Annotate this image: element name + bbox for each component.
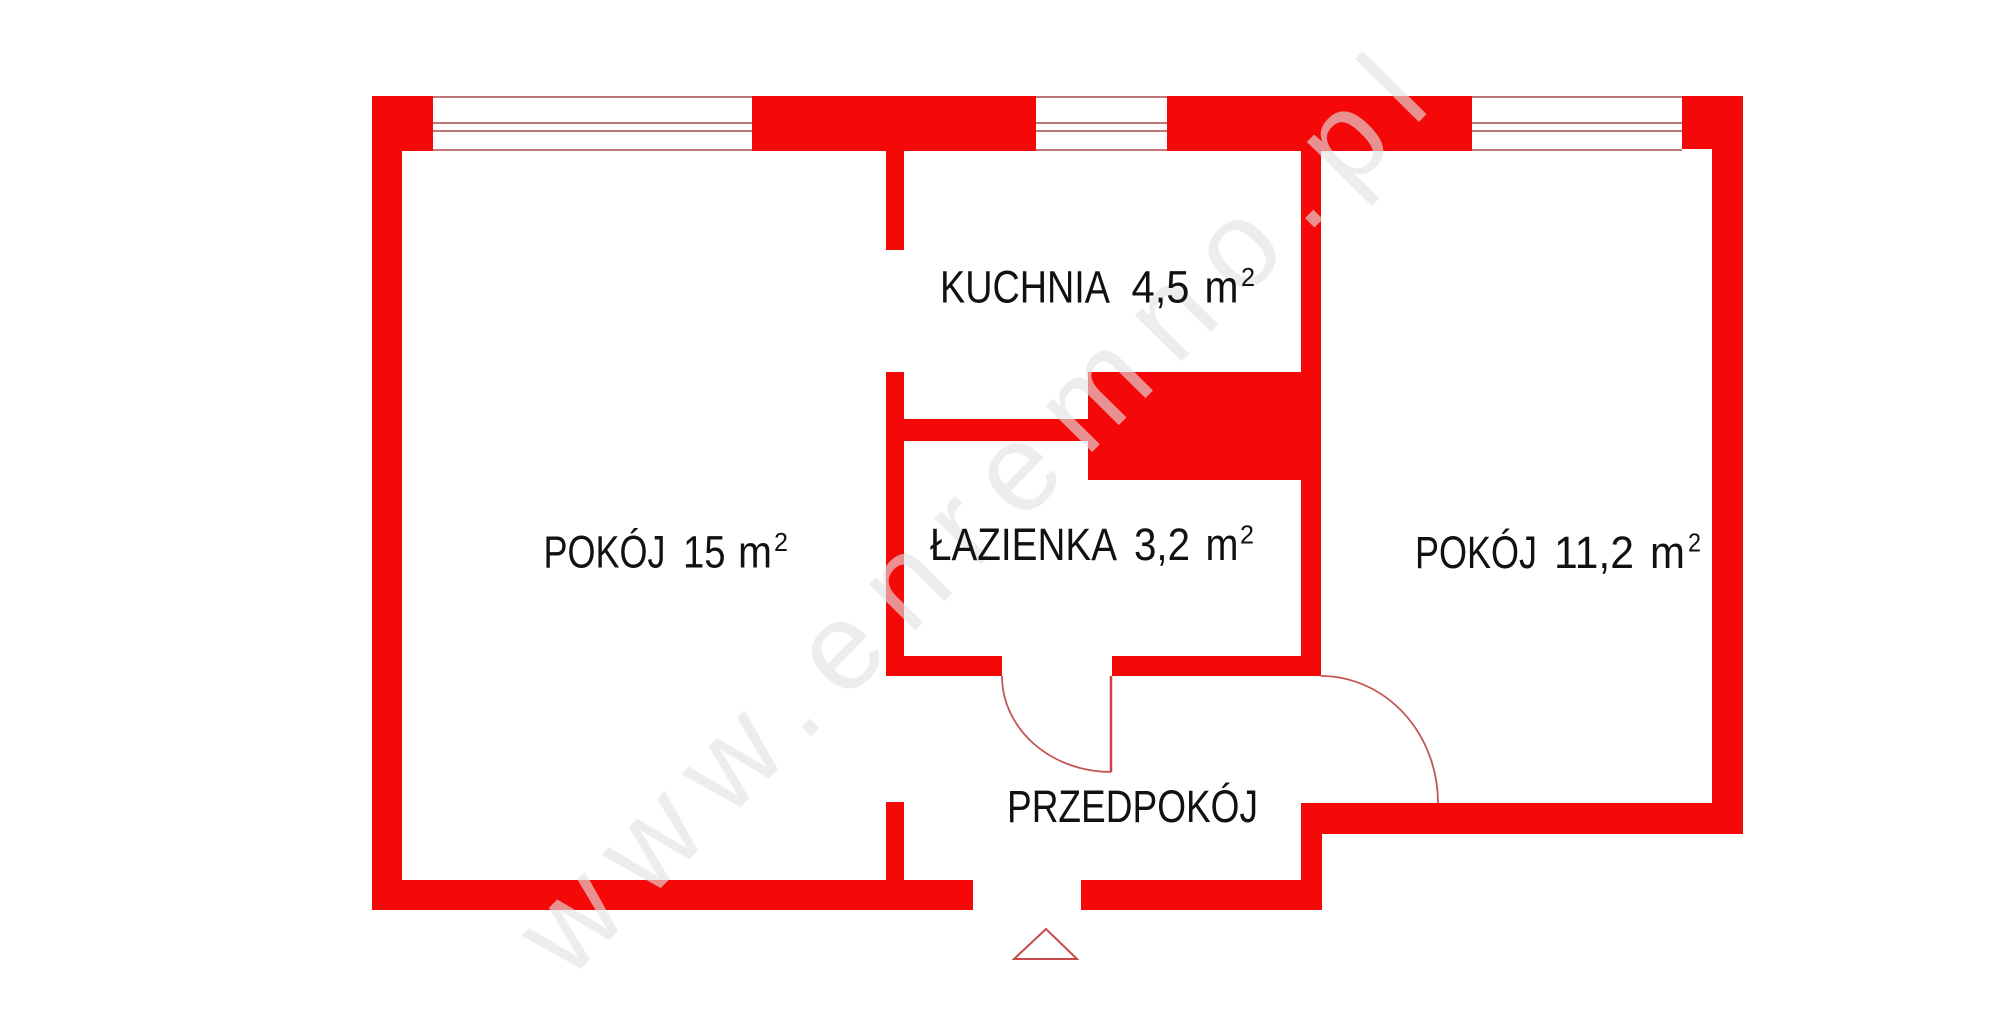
svg-text:POKÓJ: POKÓJ [1415, 527, 1537, 578]
svg-text:m: m [1206, 519, 1239, 570]
svg-text:m: m [738, 527, 772, 578]
svg-text:11,2: 11,2 [1554, 527, 1634, 578]
svg-text:ŁAZIENKA: ŁAZIENKA [930, 519, 1117, 570]
svg-text:15: 15 [683, 527, 726, 578]
svg-text:PRZEDPOKÓJ: PRZEDPOKÓJ [1007, 781, 1258, 832]
svg-text:2: 2 [1688, 528, 1701, 558]
svg-text:m: m [1650, 527, 1685, 578]
svg-text:2: 2 [1240, 520, 1254, 550]
svg-text:4,5: 4,5 [1132, 262, 1190, 313]
svg-text:3,2: 3,2 [1134, 519, 1190, 570]
svg-text:m: m [1205, 262, 1239, 313]
svg-text:2: 2 [774, 527, 788, 557]
svg-text:KUCHNIA: KUCHNIA [940, 262, 1110, 313]
svg-text:2: 2 [1241, 262, 1255, 292]
svg-text:POKÓJ: POKÓJ [544, 527, 666, 578]
